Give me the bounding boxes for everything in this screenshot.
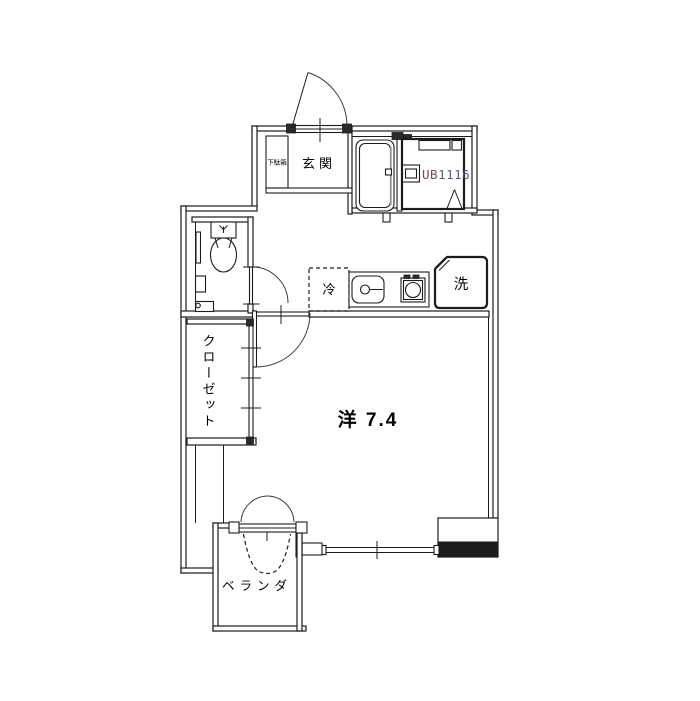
bathtub	[356, 140, 394, 211]
towel-bar	[196, 232, 201, 263]
bath-shelf	[452, 141, 462, 151]
bathroom-area: UB1116	[356, 133, 470, 223]
window	[296, 533, 439, 559]
refrigerator-label: 冷	[322, 282, 335, 297]
bath-shelf	[419, 141, 450, 151]
unit-bath-prefix: UB	[422, 167, 438, 182]
toilet-fixture	[211, 222, 237, 272]
washer-label: 洗	[454, 276, 469, 293]
wall-stub	[383, 213, 390, 222]
main-room-door	[253, 305, 311, 367]
closet-folding-door	[241, 319, 261, 444]
paper-holder	[196, 276, 206, 292]
balcony-label: ベランダ	[222, 578, 292, 593]
main-room-area: 洋 7.4	[296, 408, 439, 559]
floorplan-svg: 玄関 下駄箱 UB1116	[0, 0, 700, 701]
closet-label: クローゼット	[201, 334, 216, 430]
entrance-area: 玄関 下駄箱	[266, 73, 352, 194]
closet-area: クローゼット	[201, 319, 262, 444]
balcony-area: ベランダ	[213, 496, 307, 631]
balcony-door	[229, 496, 307, 574]
unit-bath-label: UB1116	[422, 167, 470, 182]
washer-space: 洗	[435, 257, 487, 308]
unit-bath-size: 1116	[438, 167, 470, 182]
toilet-door	[243, 267, 288, 304]
shoe-cabinet-label: 下駄箱	[267, 158, 287, 167]
kitchen-sink	[352, 276, 384, 303]
toilet-area	[192, 217, 288, 313]
corner-wall-thick	[438, 542, 498, 557]
stove-burner	[401, 275, 425, 302]
wash-basin	[403, 165, 420, 182]
main-room-label: 洋 7.4	[338, 408, 399, 431]
entrance-step	[266, 188, 352, 193]
floorplan-page: 玄関 下駄箱 UB1116	[0, 0, 700, 701]
entrance-door	[287, 73, 352, 143]
entrance-label: 玄関	[302, 156, 336, 171]
wall-stub	[445, 213, 452, 222]
